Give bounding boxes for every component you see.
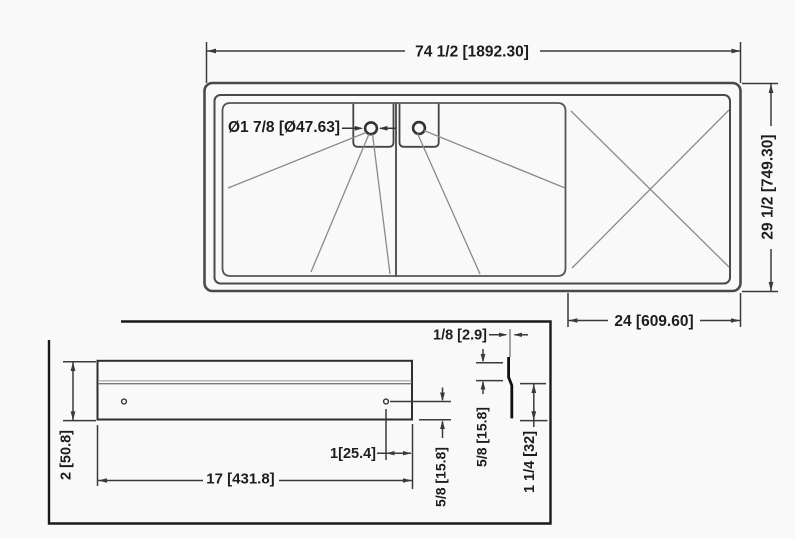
svg-text:5/8 [15.8]: 5/8 [15.8] [474,407,490,467]
svg-text:Ø1 7/8 [Ø47.63]: Ø1 7/8 [Ø47.63] [228,119,340,136]
svg-text:2 [50.8]: 2 [50.8] [59,430,75,480]
svg-text:29 1/2 [749.30]: 29 1/2 [749.30] [760,134,777,239]
svg-text:1 1/4 [32]: 1 1/4 [32] [522,431,538,493]
svg-text:24 [609.60]: 24 [609.60] [614,313,693,330]
svg-text:1/8 [2.9]: 1/8 [2.9] [433,328,487,344]
svg-text:1[25.4]: 1[25.4] [330,446,376,462]
svg-text:74 1/2 [1892.30]: 74 1/2 [1892.30] [415,44,529,61]
svg-text:17 [431.8]: 17 [431.8] [206,471,274,488]
svg-text:5/8 [15.8]: 5/8 [15.8] [433,447,449,507]
